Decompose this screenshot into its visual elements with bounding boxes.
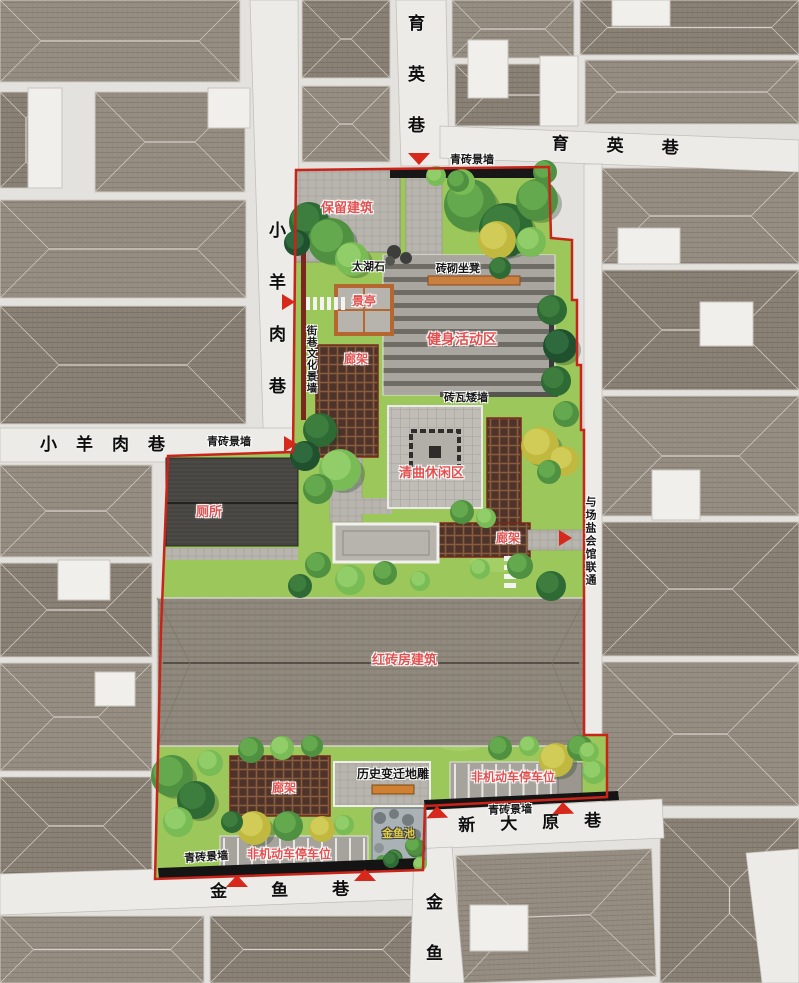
tree <box>334 815 354 835</box>
tree <box>553 401 579 427</box>
flat-roof-building <box>700 302 753 346</box>
tree <box>410 571 430 591</box>
tree <box>284 230 310 256</box>
tree <box>221 811 243 833</box>
roof-block <box>302 0 390 78</box>
tree <box>301 735 323 757</box>
flat-roof-building <box>28 88 62 188</box>
tree <box>519 736 539 756</box>
courtyard-stage <box>411 431 459 473</box>
tree <box>238 737 264 763</box>
tree <box>163 807 193 837</box>
tree <box>507 553 533 579</box>
tree <box>197 750 223 776</box>
tree <box>270 736 294 760</box>
tree <box>290 441 320 471</box>
roof-block <box>602 522 799 656</box>
roof-block <box>0 916 204 983</box>
flat-roof-building <box>652 470 700 520</box>
tree <box>373 561 397 585</box>
roof-block <box>602 662 799 806</box>
roof-block <box>585 60 799 124</box>
tree <box>288 574 312 598</box>
flat-roof-building <box>58 560 110 600</box>
tree <box>447 170 469 192</box>
tree <box>582 760 606 784</box>
west-link-path <box>330 498 392 514</box>
tree <box>303 474 333 504</box>
roof-block <box>302 86 390 162</box>
low-brick-wall <box>440 392 558 397</box>
tree <box>537 295 567 325</box>
tree <box>335 565 365 595</box>
tree <box>476 508 496 528</box>
tree <box>273 811 303 841</box>
toilet-south-walk <box>166 548 298 560</box>
tree <box>489 257 511 279</box>
flat-roof-building <box>468 40 508 98</box>
flat-roof-building <box>618 228 680 264</box>
brick-bench <box>428 276 520 285</box>
tree <box>488 736 512 760</box>
roof-block <box>210 916 416 983</box>
tree <box>309 816 335 842</box>
tree <box>533 160 557 184</box>
flat-roof-building <box>612 0 670 26</box>
roof-block <box>0 0 240 82</box>
tree <box>450 500 474 524</box>
roof-block <box>0 465 152 557</box>
alley-east <box>584 164 602 737</box>
tree <box>405 837 423 855</box>
tree <box>541 366 571 396</box>
pergola-south <box>230 756 330 816</box>
tree <box>383 852 399 868</box>
pergola-east-horizontal <box>434 523 530 557</box>
tree <box>537 460 561 484</box>
tree <box>579 742 599 762</box>
flat-roof-building <box>95 672 135 706</box>
roof-block <box>0 306 246 424</box>
tree <box>470 559 490 579</box>
east-walkway <box>528 530 584 550</box>
flat-roof-building <box>208 88 250 128</box>
pergola-east-vertical <box>487 418 521 526</box>
history-plaza <box>334 762 430 806</box>
tree <box>305 552 331 578</box>
redbrick-building-roof <box>157 598 585 746</box>
flat-roof-building <box>540 56 578 126</box>
culture-wall <box>301 250 306 420</box>
tree <box>536 571 566 601</box>
tree <box>516 227 546 257</box>
roof-block <box>0 777 152 875</box>
pool-structure <box>334 524 438 562</box>
roof-block <box>0 200 246 298</box>
toilet-building <box>166 458 298 546</box>
site-plan-canvas: 育英巷育英巷小羊肉巷小羊肉巷新大原巷金鱼巷金鱼青砖景墙青砖景墙青砖景墙青砖景墙保… <box>0 0 799 983</box>
plan-drawing <box>0 0 799 983</box>
flat-roof-building <box>470 905 528 951</box>
